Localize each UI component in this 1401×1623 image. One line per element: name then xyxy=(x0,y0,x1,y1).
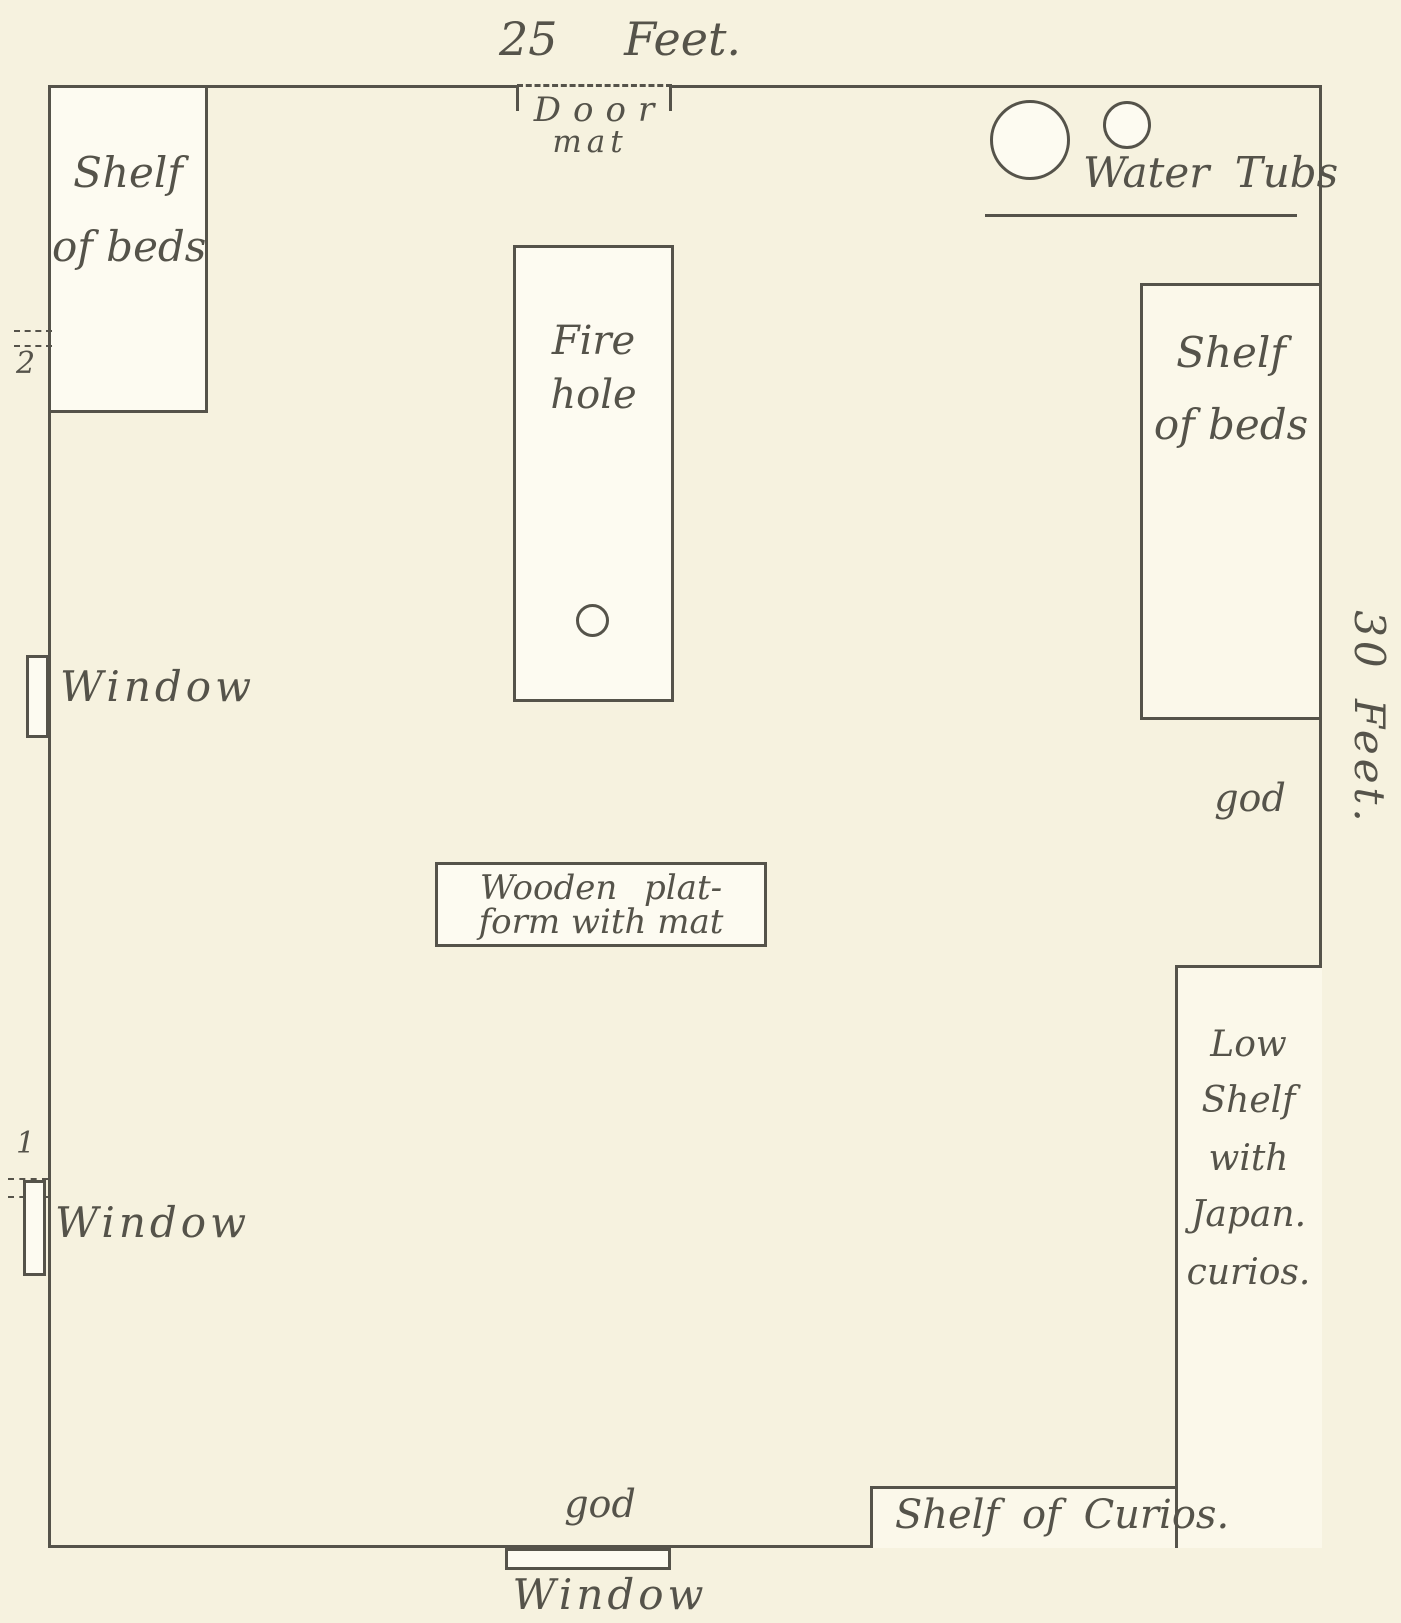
marker-2-label: 2 xyxy=(16,346,35,381)
right-shelf-label-line2: of beds xyxy=(1143,400,1319,449)
side-dimension-label: 30 Feet. xyxy=(1342,588,1394,848)
left-shelf-label-line1: Shelf xyxy=(52,148,204,197)
upper-left-window xyxy=(26,655,49,738)
water-tub-large-circle xyxy=(990,100,1070,180)
top-dimension-label: 25 Feet. xyxy=(420,12,820,66)
bottom-window-label: Window xyxy=(495,1570,725,1619)
marker-1-label: 1 xyxy=(16,1126,35,1161)
bottom-window xyxy=(505,1548,671,1570)
water-tub-small-circle xyxy=(1103,101,1151,149)
low-shelf-label-line1: Low xyxy=(1178,1024,1319,1065)
right-shelf-label-line1: Shelf xyxy=(1143,328,1319,377)
god-right-label: god xyxy=(1180,776,1320,820)
water-tubs-label: Water Tubs xyxy=(1083,148,1338,197)
fire-hole-label-line1: Fire xyxy=(517,318,670,364)
low-shelf-label-line4: Japan. xyxy=(1178,1194,1319,1235)
low-shelf-label-line2: Shelf xyxy=(1178,1080,1319,1121)
fire-hole-label-line2: hole xyxy=(517,372,670,418)
lower-left-window-label: Window xyxy=(55,1198,250,1247)
god-bottom-label: god xyxy=(530,1482,670,1526)
shelf-of-curios-label: Shelf of Curios. xyxy=(872,1492,1252,1538)
floor-plan-page: 25 Feet. Door mat Water Tubs Shelf of be… xyxy=(0,0,1401,1623)
lower-left-window xyxy=(23,1180,46,1276)
upper-left-window-label: Window xyxy=(60,662,255,711)
low-shelf-label-line5: curios. xyxy=(1178,1252,1319,1293)
fire-hole-opening-circle xyxy=(576,604,609,637)
water-tubs-underline xyxy=(985,214,1297,217)
room-outline xyxy=(48,85,1322,1548)
wooden-platform-label-line2: form with mat xyxy=(440,902,762,942)
door-mat-label: mat xyxy=(510,124,670,160)
left-shelf-label-line2: of beds xyxy=(52,222,204,271)
low-shelf-label-line3: with xyxy=(1178,1138,1319,1179)
marker-2-dash-top xyxy=(14,330,52,332)
